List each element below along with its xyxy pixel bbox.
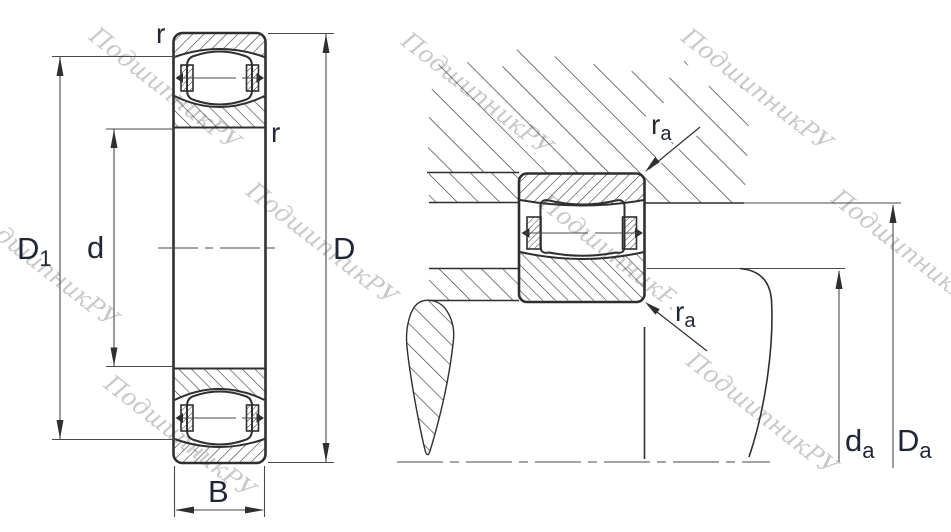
dim-label-r-side: r — [271, 117, 280, 148]
shaft-break-section — [407, 300, 454, 454]
dim-label-r-top: r — [156, 18, 165, 49]
right-view-mounting: ra ra da Da — [397, 46, 932, 468]
shaft-shoulder-section — [429, 269, 519, 301]
dimension-da: da — [836, 270, 876, 463]
dim-label-d: d — [87, 230, 104, 265]
dim-label-da: da — [845, 423, 875, 463]
dim-label-Da: Da — [897, 423, 932, 463]
dim-label-B: B — [208, 474, 229, 509]
dim-label-D: D — [333, 231, 355, 266]
diagram-svg: ПодшипникРУ ПодшипникРУ ПодшипникРУ Подш… — [0, 0, 951, 532]
housing-locating-ring-section — [429, 173, 519, 203]
dim-label-D1: D1 — [17, 231, 52, 271]
outer-ring-section — [520, 175, 644, 206]
bearing-technical-drawing: ПодшипникРУ ПодшипникРУ ПодшипникРУ Подш… — [0, 0, 951, 532]
